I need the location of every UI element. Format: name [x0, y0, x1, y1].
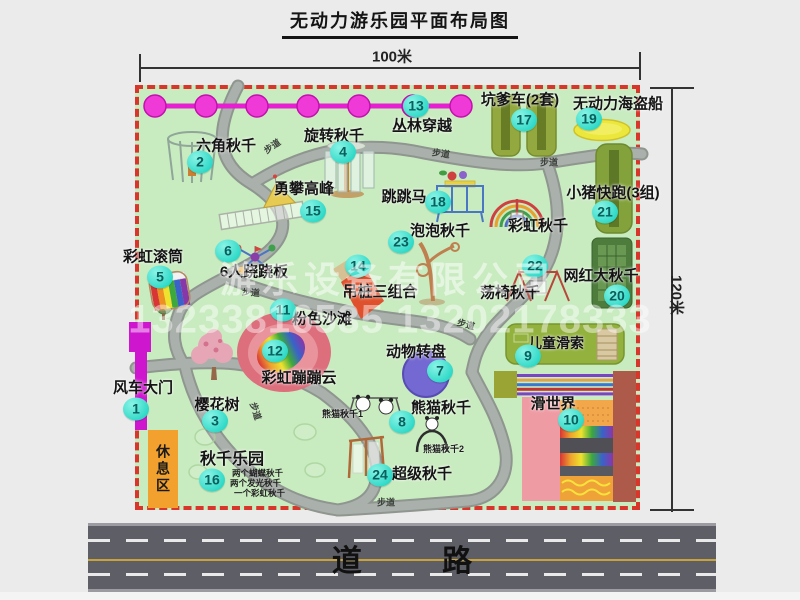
badge-11: 11: [270, 299, 296, 322]
sublabel-panda-swing-1: 熊猫秋千1: [322, 407, 363, 420]
badge-1: 1: [123, 398, 149, 421]
road-label: 道 路: [88, 526, 716, 589]
dimension-width-label: 100米: [372, 46, 412, 67]
rest-area: 休息区: [148, 430, 178, 508]
path-label-6: 步道: [377, 496, 395, 509]
page-title: 无动力游乐园平面布局图: [282, 7, 518, 39]
badge-8: 8: [389, 411, 415, 434]
label-super-swing: 超级秋千: [392, 463, 452, 484]
swing-park-note-3: 一个彩虹秋千: [234, 487, 285, 499]
label-pit-car: 坑爹车(2套): [481, 89, 559, 110]
label-hanging-pile: 吊桩三组合: [342, 281, 417, 302]
badge-19: 19: [576, 108, 602, 131]
badge-15: 15: [300, 200, 326, 223]
badge-16: 16: [199, 469, 225, 492]
label-panda-swing: 熊猫秋千: [411, 397, 471, 418]
path-label-4: 步道: [241, 285, 260, 300]
badge-6: 6: [215, 240, 241, 263]
label-windmill-gate: 风车大门: [113, 377, 173, 398]
badge-2: 2: [187, 151, 213, 174]
badge-17: 17: [511, 109, 537, 132]
road: 道 路: [88, 523, 716, 592]
label-jungle-crossing: 丛林穿越: [392, 115, 452, 136]
label-piggy-run: 小猪快跑(3组): [566, 182, 659, 203]
label-rainbow-swing: 彩虹秋千: [508, 215, 568, 236]
label-jumping-horse: 跳跳马: [381, 186, 426, 207]
path-label-3: 步道: [540, 156, 558, 169]
badge-20: 20: [604, 285, 630, 308]
badge-9: 9: [515, 345, 541, 368]
bubble-swing-icon: [417, 243, 459, 306]
badge-13: 13: [403, 95, 429, 118]
label-animal-turntable: 动物转盘: [386, 341, 446, 362]
badge-21: 21: [592, 201, 618, 224]
badge-4: 4: [330, 141, 356, 164]
label-swing-chair: 荡椅秋千: [480, 282, 540, 303]
badge-23: 23: [388, 231, 414, 254]
label-pink-beach: 粉色沙滩: [292, 308, 352, 329]
label-rainbow-roller: 彩虹滚筒: [123, 246, 183, 267]
rest-area-label: 休息区: [153, 444, 173, 495]
label-big-swing: 网红大秋千: [563, 265, 638, 286]
badge-5: 5: [147, 266, 173, 289]
path-label-2: 步道: [431, 145, 451, 160]
label-swing-park: 秋千乐园: [200, 445, 264, 469]
dimension-height-label: 120米: [667, 275, 688, 315]
label-climbing-peak: 勇攀高峰: [274, 178, 334, 199]
badge-7: 7: [427, 360, 453, 383]
label-seesaw: 6人跷跷板: [220, 261, 288, 282]
slide-world-icon: [494, 371, 636, 502]
sublabel-panda-swing-2: 熊猫秋千2: [423, 442, 464, 455]
badge-14: 14: [345, 255, 371, 278]
badge-12: 12: [262, 340, 288, 363]
badge-18: 18: [425, 191, 451, 214]
badge-3: 3: [202, 410, 228, 433]
badge-10: 10: [558, 409, 584, 432]
cherry-tree-icon: [191, 329, 233, 380]
badge-22: 22: [522, 255, 548, 278]
park-layout-screenshot: 无动力游乐园平面布局图 100米 120米: [0, 0, 800, 600]
badge-24: 24: [367, 464, 393, 487]
label-bouncing-cloud: 彩虹蹦蹦云: [261, 367, 336, 388]
label-bubble-swing: 泡泡秋千: [410, 220, 470, 241]
